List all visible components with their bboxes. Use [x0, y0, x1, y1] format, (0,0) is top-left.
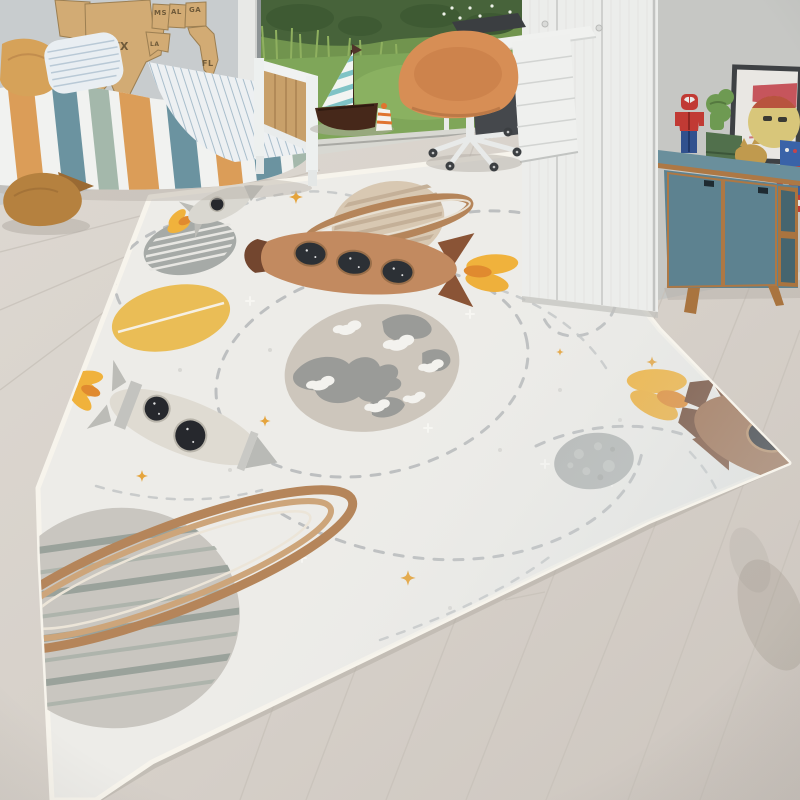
map-label-ms: MS — [154, 9, 167, 17]
wardrobe-knob — [596, 25, 602, 31]
map-label-la: LA — [150, 41, 159, 48]
door-handle-cutout — [704, 180, 714, 187]
plush-toy — [2, 172, 94, 235]
photo-kids-room: AK TX LA MS AL GA FL — [0, 0, 800, 800]
sideboard-cubbies — [778, 186, 798, 287]
map-label-fl: FL — [202, 59, 214, 68]
drawer-unit — [512, 34, 578, 162]
door-handle-cutout — [758, 187, 768, 194]
map-label-ga: GA — [189, 6, 201, 14]
wardrobe-knob — [542, 21, 548, 27]
yellow-head-toy — [748, 96, 800, 148]
map-label-al: AL — [171, 8, 182, 16]
sideboard-body — [664, 170, 798, 288]
